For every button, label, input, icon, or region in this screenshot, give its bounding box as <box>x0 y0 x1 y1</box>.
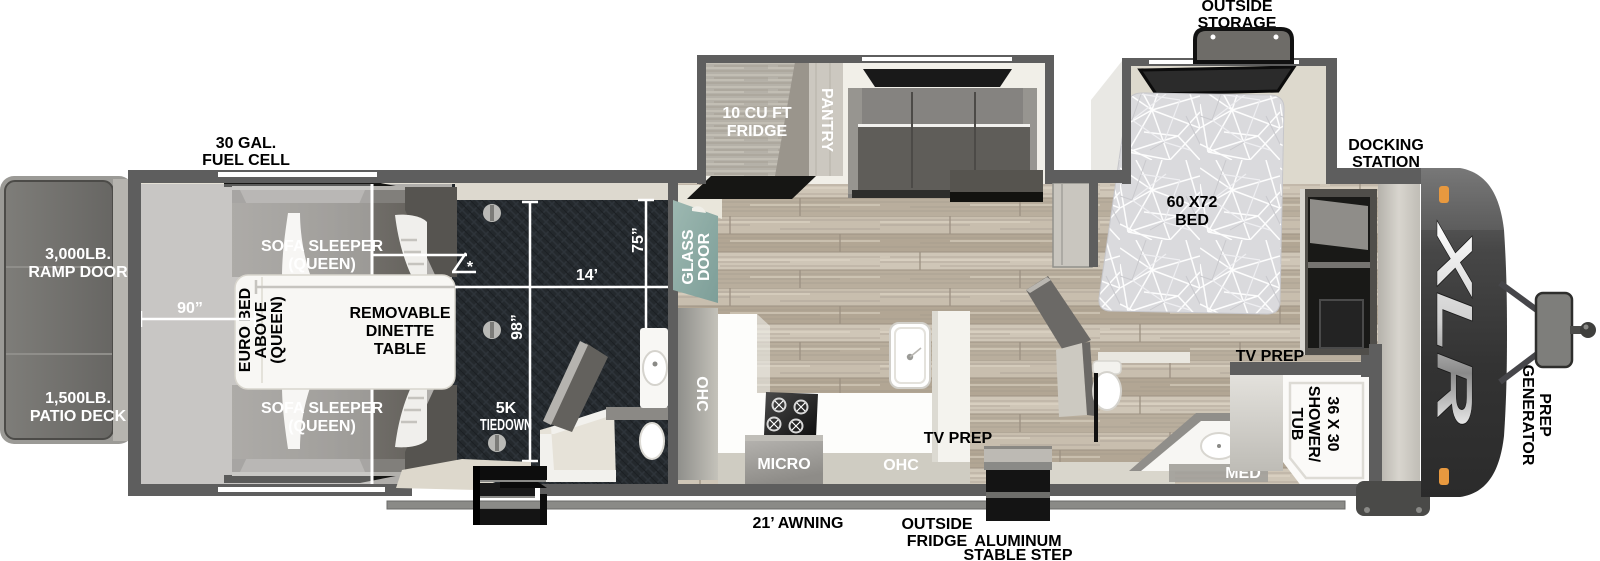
svg-text:OUTSIDE: OUTSIDE <box>1201 0 1272 15</box>
svg-text:90”: 90” <box>177 300 203 317</box>
svg-text:DOOR: DOOR <box>696 233 713 281</box>
svg-text:3,000LB.: 3,000LB. <box>45 246 111 263</box>
svg-text:(QUEEN): (QUEEN) <box>288 418 356 435</box>
svg-text:OHC: OHC <box>693 376 710 412</box>
svg-text:PREP: PREP <box>1536 393 1553 437</box>
svg-text:SOFA SLEEPER: SOFA SLEEPER <box>261 238 384 255</box>
svg-text:36 X 30: 36 X 30 <box>1324 396 1341 451</box>
svg-text:MICRO: MICRO <box>757 456 810 473</box>
svg-text:5K: 5K <box>496 400 517 417</box>
svg-text:1,500LB.: 1,500LB. <box>45 390 111 407</box>
svg-text:(QUEEN): (QUEEN) <box>269 296 286 364</box>
svg-text:PANTRY: PANTRY <box>818 88 835 152</box>
svg-text:OUTSIDE: OUTSIDE <box>901 516 972 533</box>
svg-text:GLASS: GLASS <box>680 229 697 284</box>
svg-text:30 GAL.: 30 GAL. <box>216 135 276 152</box>
svg-text:TUB: TUB <box>1288 408 1305 441</box>
svg-text:*: * <box>467 259 474 276</box>
svg-text:OHC: OHC <box>883 457 919 474</box>
svg-text:PATIO DECK: PATIO DECK <box>30 408 127 425</box>
svg-text:SHOWER/: SHOWER/ <box>1305 386 1322 463</box>
svg-text:60 X72: 60 X72 <box>1167 194 1218 211</box>
svg-text:FRIDGE: FRIDGE <box>907 533 968 550</box>
svg-text:21’ AWNING: 21’ AWNING <box>753 515 844 532</box>
svg-text:GENERATOR: GENERATOR <box>1519 365 1536 466</box>
svg-text:DOCKING: DOCKING <box>1348 137 1424 154</box>
svg-text:TIEDOWN: TIEDOWN <box>480 417 532 434</box>
svg-text:FUEL CELL: FUEL CELL <box>202 152 290 169</box>
svg-text:(QUEEN): (QUEEN) <box>288 256 356 273</box>
svg-text:STABLE STEP: STABLE STEP <box>963 547 1072 561</box>
svg-text:98”: 98” <box>509 314 526 340</box>
svg-text:XLR: XLR <box>1426 220 1483 425</box>
svg-text:REMOVABLE: REMOVABLE <box>349 305 450 322</box>
svg-text:75”: 75” <box>630 227 647 253</box>
svg-text:10 CU FT: 10 CU FT <box>722 105 792 122</box>
svg-text:SOFA SLEEPER: SOFA SLEEPER <box>261 400 384 417</box>
svg-text:EURO BED: EURO BED <box>237 288 254 372</box>
svg-text:FRIDGE: FRIDGE <box>727 123 788 140</box>
svg-text:TV PREP: TV PREP <box>924 430 993 447</box>
svg-text:BED: BED <box>1175 212 1209 229</box>
svg-text:14’: 14’ <box>576 267 598 284</box>
svg-text:RAMP DOOR: RAMP DOOR <box>28 264 128 281</box>
svg-text:ABOVE: ABOVE <box>253 301 270 358</box>
svg-text:TABLE: TABLE <box>374 341 426 358</box>
svg-text:DINETTE: DINETTE <box>366 323 435 340</box>
